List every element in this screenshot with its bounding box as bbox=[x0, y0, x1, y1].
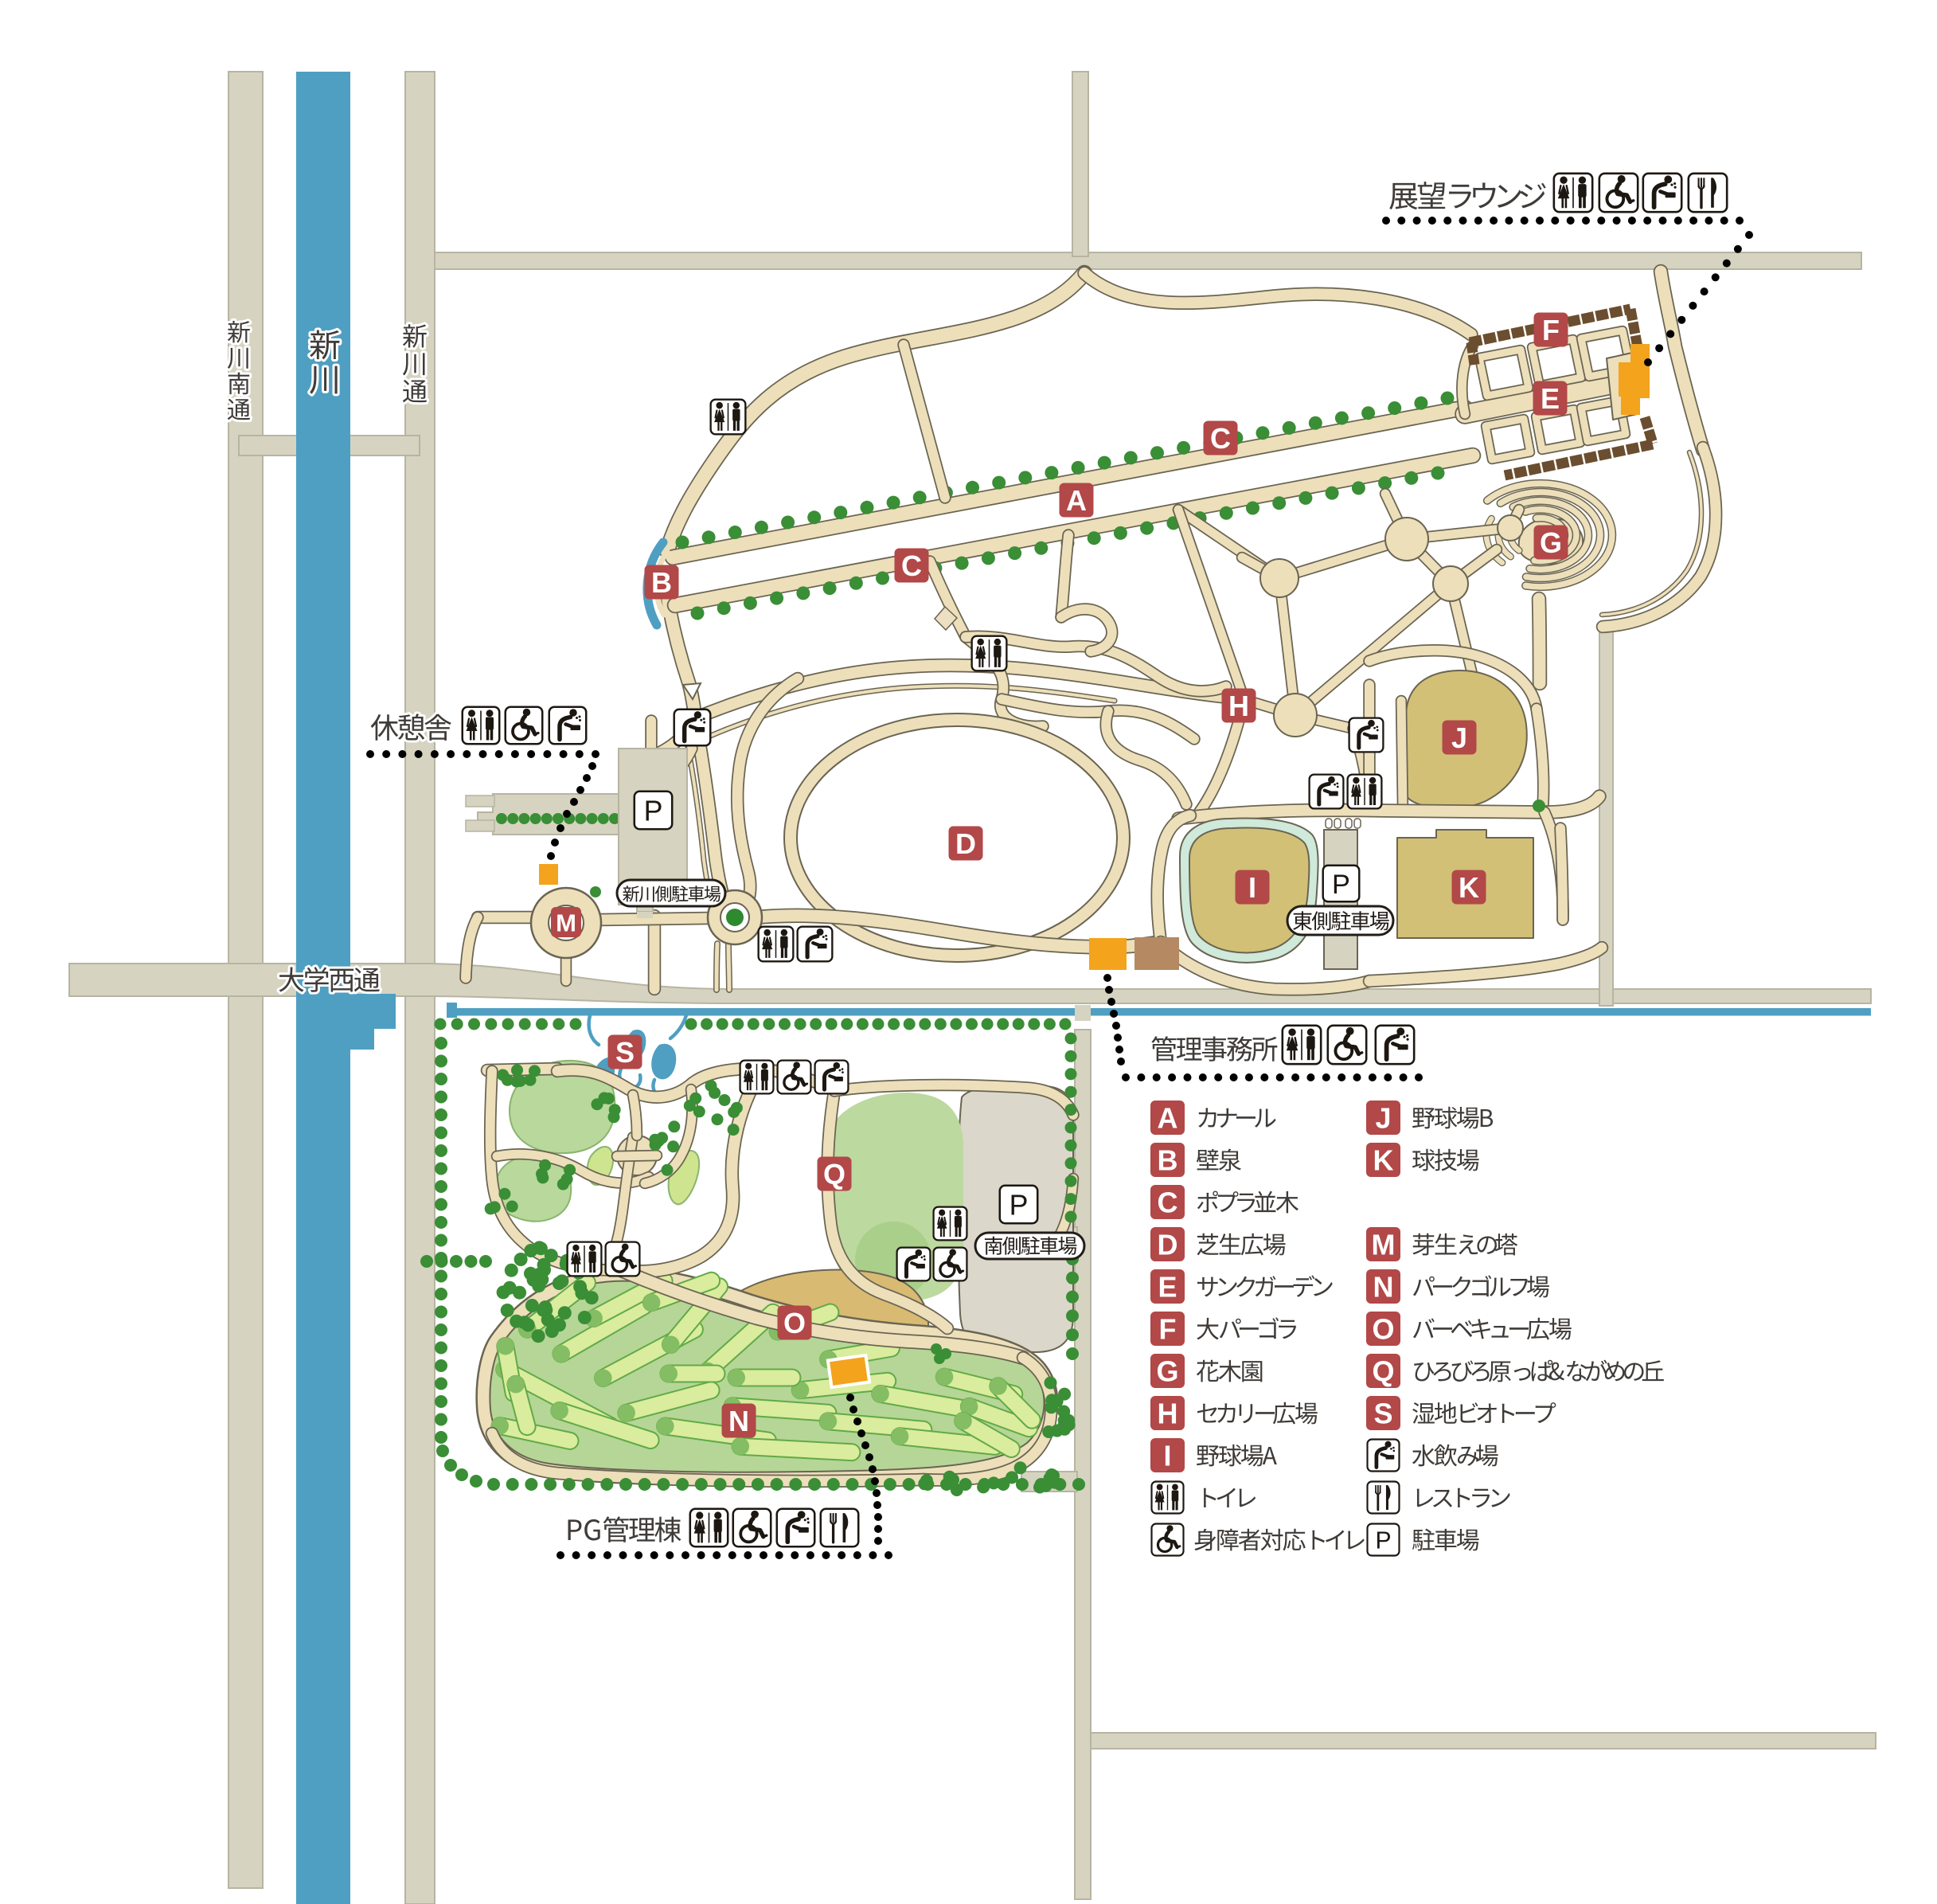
svg-text:A: A bbox=[1066, 484, 1087, 517]
svg-text:O: O bbox=[783, 1307, 806, 1339]
svg-text:F: F bbox=[1159, 1312, 1177, 1345]
svg-text:B: B bbox=[651, 566, 672, 599]
svg-text:M: M bbox=[556, 909, 576, 936]
svg-text:D: D bbox=[955, 827, 976, 860]
svg-text:N: N bbox=[728, 1405, 749, 1437]
svg-text:Q: Q bbox=[823, 1158, 845, 1190]
svg-text:F: F bbox=[1542, 314, 1560, 346]
svg-text:C: C bbox=[901, 549, 922, 582]
svg-text:H: H bbox=[1228, 690, 1249, 722]
svg-text:Q: Q bbox=[1372, 1355, 1394, 1387]
svg-text:I: I bbox=[1248, 871, 1256, 904]
svg-text:G: G bbox=[1540, 526, 1562, 559]
svg-text:O: O bbox=[1372, 1312, 1394, 1345]
svg-text:S: S bbox=[615, 1036, 635, 1069]
svg-text:K: K bbox=[1373, 1144, 1394, 1176]
svg-text:D: D bbox=[1158, 1228, 1178, 1261]
svg-text:C: C bbox=[1210, 422, 1231, 455]
svg-text:J: J bbox=[1451, 721, 1467, 754]
svg-text:M: M bbox=[1372, 1228, 1396, 1261]
svg-text:E: E bbox=[1158, 1270, 1177, 1303]
svg-text:B: B bbox=[1158, 1144, 1178, 1176]
svg-text:C: C bbox=[1158, 1186, 1178, 1218]
svg-text:H: H bbox=[1158, 1397, 1178, 1429]
svg-text:A: A bbox=[1158, 1101, 1178, 1134]
svg-text:G: G bbox=[1156, 1355, 1178, 1387]
svg-text:E: E bbox=[1541, 382, 1560, 415]
svg-text:J: J bbox=[1375, 1101, 1391, 1134]
svg-text:K: K bbox=[1459, 871, 1479, 904]
svg-text:N: N bbox=[1373, 1270, 1394, 1303]
svg-text:S: S bbox=[1373, 1397, 1392, 1429]
svg-text:I: I bbox=[1163, 1439, 1171, 1472]
